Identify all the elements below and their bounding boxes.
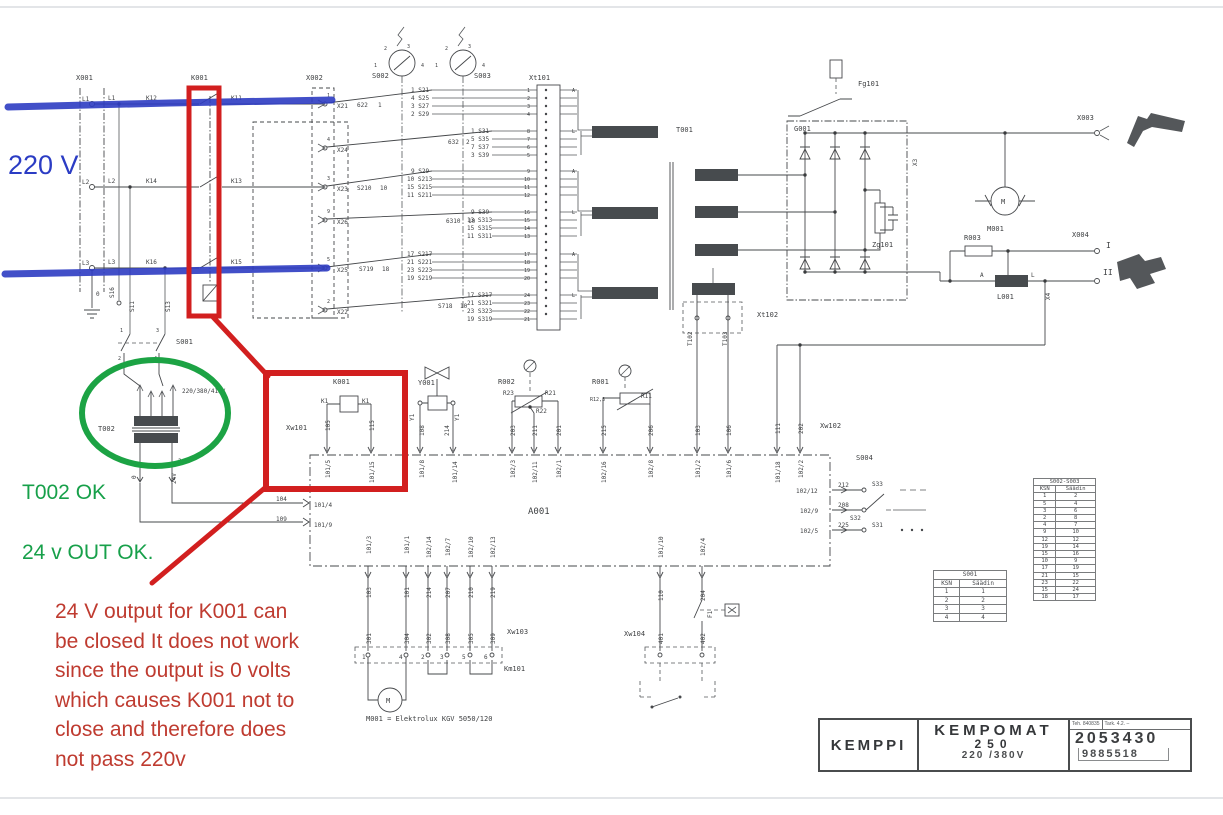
- wire-label: T002: [98, 425, 115, 433]
- wire-label: 208: [838, 502, 849, 509]
- wire-label: 14: [524, 226, 530, 232]
- model-voltage: 220 /380V: [919, 750, 1068, 762]
- wire-label: Xw103: [507, 628, 528, 636]
- wire-label: Xt101: [529, 74, 550, 82]
- wire-label: 102/3: [510, 460, 517, 478]
- supply-voltage-note: 220 V: [8, 150, 79, 181]
- scanned-schematic-page: X001K001X002S002S003Xt101T001G001Fg101X0…: [0, 0, 1223, 815]
- wire-label: 4: [327, 137, 330, 143]
- table-row-cell: 3: [960, 605, 1007, 614]
- a001-control-board: [310, 430, 830, 651]
- table-row: 36: [1034, 507, 1096, 514]
- wire-label: 102/9: [800, 508, 818, 515]
- wire-label: 1 S21: [411, 87, 429, 94]
- wire-label: 632: [448, 139, 459, 146]
- table-header-row-cell: KSN: [934, 579, 960, 588]
- wire-label: L3: [108, 259, 116, 266]
- wire-label: 13 S313: [467, 217, 493, 224]
- wire-label: 2: [118, 356, 121, 362]
- wire-label: Y1: [454, 413, 461, 421]
- wire-label: 101/14: [452, 461, 459, 483]
- wire-label: A: [572, 169, 575, 175]
- wire-label: 19 S219: [407, 275, 433, 282]
- wire-label: 101/10: [658, 536, 665, 558]
- wire-label: 0: [96, 291, 100, 298]
- table-row: 28: [1034, 515, 1096, 522]
- wire-label: S13: [165, 301, 172, 312]
- wire-label: II: [1103, 268, 1113, 277]
- wire-label: X4: [1045, 292, 1052, 300]
- wire-label: 24V: [171, 473, 178, 484]
- wire-label: 101/4: [314, 502, 332, 509]
- wire-label: K14: [146, 178, 157, 185]
- wire-label: 102/10: [468, 536, 475, 558]
- table-row-cell: 19: [1034, 543, 1056, 550]
- table-row-cell: 1: [934, 588, 960, 597]
- red-connector-line-lower: [152, 487, 266, 583]
- table-row: 22: [934, 596, 1007, 605]
- wire-label: M001 = Elektrolux KGV 5050/120: [366, 715, 492, 723]
- wire-label: 10: [524, 177, 530, 183]
- table-row-cell: 7: [1056, 522, 1096, 529]
- table-row-cell: 2: [960, 596, 1007, 605]
- wire-label: 102/14: [426, 536, 433, 558]
- green-ok-note: T002 OK 24 v OUT OK.: [22, 448, 154, 568]
- wire-label: L2: [82, 179, 90, 186]
- xt101-connector: [432, 85, 658, 330]
- wire-label: 1: [378, 102, 382, 109]
- selector-switches-s002-s003: [389, 27, 476, 312]
- wire-label: 20: [524, 276, 530, 282]
- wire-label: F1: [707, 610, 714, 618]
- wire-label: 4: [421, 63, 424, 69]
- wire-label: 4: [527, 112, 530, 118]
- table-title: S001: [934, 571, 1007, 580]
- wire-label: 3: [527, 104, 530, 110]
- wire-label: 2: [445, 46, 448, 52]
- xw104-trigger-section: [640, 566, 739, 709]
- table-title-row: S002-S003: [1034, 479, 1096, 486]
- green-note-line1: T002 OK: [22, 481, 106, 504]
- wire-label: M001: [987, 225, 1004, 233]
- red-fault-note: 24 V output for K001 can be closed It do…: [55, 597, 365, 774]
- wire-label: 21 S221: [407, 259, 433, 266]
- wire-label: 101/6: [726, 460, 733, 478]
- wire-label: 101/2: [695, 460, 702, 478]
- wire-label: 1: [435, 63, 438, 69]
- wire-label: 204: [700, 590, 707, 601]
- table-row-cell: 4: [1056, 500, 1096, 507]
- wire-label: 6: [527, 145, 530, 151]
- wire-label: 101/8: [419, 460, 426, 478]
- table-row: 12: [1034, 493, 1096, 500]
- wire-label: 23: [524, 301, 530, 307]
- wire-label: G001: [794, 125, 811, 133]
- wire-label: 102/8: [648, 460, 655, 478]
- wire-label: 2: [527, 96, 530, 102]
- wire-label: 102/5: [800, 528, 818, 535]
- table-row-cell: 18: [1034, 594, 1056, 601]
- wire-label: 3: [407, 44, 410, 50]
- wire-label: 101/3: [366, 536, 373, 554]
- table-row-cell: 4: [1034, 522, 1056, 529]
- table-title-row: S001: [934, 571, 1007, 580]
- wire-label: Fg101: [858, 80, 879, 88]
- wire-label: 9: [327, 209, 330, 215]
- table-row-cell: 8: [1056, 515, 1096, 522]
- table-row-cell: 24: [1056, 587, 1096, 594]
- wire-label: 24: [524, 293, 530, 299]
- wire-label: 9 S39: [471, 209, 489, 216]
- table-row-cell: 4: [960, 613, 1007, 622]
- wire-label: X22: [337, 309, 348, 316]
- wire-label: R22: [536, 408, 547, 415]
- table-row-cell: 12: [1034, 536, 1056, 543]
- document-number: 2053430: [1070, 730, 1190, 748]
- wire-label: 18: [382, 266, 390, 273]
- t001-transformer: [670, 162, 865, 432]
- wire-label: Xt102: [757, 311, 778, 319]
- table-row-cell: 16: [1056, 551, 1096, 558]
- wire-label: M: [386, 697, 390, 705]
- wire-label: 211: [532, 425, 539, 436]
- wire-label: 11 S311: [467, 233, 493, 240]
- wire-label: 109: [276, 516, 287, 523]
- wire-label: L2: [108, 178, 116, 185]
- wire-label: 8: [527, 129, 530, 135]
- table-row-cell: 1: [1034, 493, 1056, 500]
- wire-label: 2: [466, 139, 470, 146]
- wire-label: 17 S217: [407, 251, 433, 258]
- x002-connector: [253, 88, 492, 318]
- wire-label: 10: [380, 185, 388, 192]
- table-header-row-cell: Säädin: [960, 579, 1007, 588]
- wire-label: 7 S37: [471, 144, 489, 151]
- table-row-cell: 2: [934, 596, 960, 605]
- reference-right: Tark. 4.2. –: [1103, 720, 1132, 729]
- t002-transformer: [132, 385, 309, 526]
- wire-label: 16: [524, 210, 530, 216]
- wire-label: 103: [695, 425, 702, 436]
- wire-label: 212: [838, 482, 849, 489]
- wire-label: S31: [872, 522, 883, 529]
- table-row-cell: 6: [1056, 507, 1096, 514]
- wire-label: 3: [468, 44, 471, 50]
- table-row: 1212: [1034, 536, 1096, 543]
- wire-label: 21: [524, 317, 530, 323]
- table-row: 44: [934, 613, 1007, 622]
- wire-label: 101/9: [314, 522, 332, 529]
- table-title: S002-S003: [1034, 479, 1096, 486]
- wire-label: 622: [357, 102, 368, 109]
- table-row-cell: 21: [1034, 572, 1056, 579]
- wire-label: 301: [366, 633, 373, 644]
- wire-label: 102/4: [700, 538, 707, 556]
- wire-label: 302: [426, 633, 433, 644]
- wire-label: 402: [700, 633, 707, 644]
- wire-label: S16: [109, 287, 116, 298]
- title-block: KEMPPI KEMPOMAT 250 220 /380V Teh. 84083…: [818, 718, 1192, 772]
- wire-label: 17: [524, 252, 530, 258]
- wire-label: 21 S321: [467, 300, 493, 307]
- wire-label: 1 S31: [471, 128, 489, 135]
- earth-clamp-icon: [1117, 254, 1166, 289]
- wire-label: 104: [276, 496, 287, 503]
- wire-label: 1: [374, 63, 377, 69]
- codes-cell: Teh. 840835 Tark. 4.2. – 2053430 9885518: [1070, 720, 1190, 770]
- wire-label: 1: [527, 88, 530, 94]
- wire-label: S004: [856, 454, 873, 462]
- table-row: 1914: [1034, 543, 1096, 550]
- table-row-cell: 19: [1056, 565, 1096, 572]
- table-row-cell: 4: [934, 613, 960, 622]
- wire-label: 309: [490, 633, 497, 644]
- wire-label: 101/5: [325, 460, 332, 478]
- wire-label: R001: [592, 378, 609, 386]
- wire-label: T103: [722, 331, 729, 346]
- wire-label: X001: [76, 74, 93, 82]
- wire-label: 102/11: [532, 461, 539, 483]
- wire-label: K1: [362, 398, 370, 405]
- wire-label: 5 S35: [471, 136, 489, 143]
- wire-label: 115: [369, 420, 376, 431]
- wire-label: 12: [524, 193, 530, 199]
- wire-label: 305: [468, 633, 475, 644]
- wire-label: 7: [527, 137, 530, 143]
- wire-label: 102/2: [798, 460, 805, 478]
- wire-label: 22: [524, 309, 530, 315]
- table-row-cell: 17: [1056, 594, 1096, 601]
- table-row-cell: 12: [1056, 536, 1096, 543]
- wire-label: 225: [838, 522, 849, 529]
- s002-s003-pin-table: S002-S003KSNSäädin1254362847910121219141…: [1033, 478, 1096, 601]
- reference-strip: Teh. 840835 Tark. 4.2. –: [1070, 720, 1190, 730]
- wire-label: 102/16: [601, 461, 608, 483]
- table-row-cell: 15: [1056, 572, 1096, 579]
- wire-label: L: [572, 210, 575, 216]
- wire-label: K13: [231, 178, 242, 185]
- s001-pin-table: S001KSNSäädin11223344: [933, 570, 1007, 622]
- wire-label: 201: [556, 425, 563, 436]
- brand-logo-text: KEMPPI: [820, 720, 919, 770]
- wire-label: 11 S211: [407, 192, 433, 199]
- wire-label: 1: [120, 328, 123, 334]
- table-header-row: KSNSäädin: [1034, 486, 1096, 493]
- wire-label: 15: [524, 218, 530, 224]
- wire-label: 219: [490, 587, 497, 598]
- wire-label: X004: [1072, 231, 1089, 239]
- wire-label: 202: [798, 423, 805, 434]
- wire-label: 111: [775, 423, 782, 434]
- wire-label: T001: [676, 126, 693, 134]
- wire-label: 206: [648, 425, 655, 436]
- wire-label: K001: [333, 378, 350, 386]
- wire-label: 102/12: [796, 488, 818, 495]
- wire-label: I: [1106, 241, 1111, 250]
- wire-label: L: [1031, 272, 1035, 279]
- wire-label: 4 S25: [411, 95, 429, 102]
- wire-label: Km101: [504, 665, 525, 673]
- wire-label: 203: [510, 425, 517, 436]
- table-row: 2322: [1034, 579, 1096, 586]
- table-row: 1719: [1034, 565, 1096, 572]
- wire-label: 105: [325, 420, 332, 431]
- table-header-row-cell: KSN: [1034, 486, 1056, 493]
- wire-label: T102: [687, 331, 694, 346]
- wire-label: L001: [997, 293, 1014, 301]
- wire-label: 103: [366, 587, 373, 598]
- table-row: 47: [1034, 522, 1096, 529]
- wire-label: 23 S223: [407, 267, 433, 274]
- xw103-motor-section: [355, 647, 502, 712]
- wire-label: 2 S29: [411, 111, 429, 118]
- wire-label: 308: [445, 633, 452, 644]
- blue-supply-line-top: [8, 100, 332, 107]
- table-row-cell: 2: [1056, 493, 1096, 500]
- wire-label: 2: [384, 46, 387, 52]
- wire-label: R12,3: [590, 397, 605, 403]
- wire-label: 101/18: [775, 461, 782, 483]
- table-row-cell: 9: [1056, 558, 1096, 565]
- wire-label: 401: [658, 633, 665, 644]
- wire-label: 110: [658, 590, 665, 601]
- wire-label: 214: [426, 587, 433, 598]
- table-row-cell: 1: [960, 588, 1007, 597]
- wire-label: 11: [524, 185, 530, 191]
- table-row: 2115: [1034, 572, 1096, 579]
- table-row-cell: 15: [1034, 587, 1056, 594]
- wire-label: X002: [306, 74, 323, 82]
- wire-label: S719: [359, 266, 374, 273]
- wire-label: 9 S29: [411, 168, 429, 175]
- wire-label: 3: [440, 654, 444, 661]
- part-number: 9885518: [1078, 748, 1169, 761]
- wire-label: K001: [191, 74, 208, 82]
- wire-label: 207: [445, 587, 452, 598]
- wire-label: 304: [404, 633, 411, 644]
- g001-rectifier: [787, 60, 907, 300]
- wire-label: 6310: [446, 218, 461, 225]
- table-row: 1516: [1034, 551, 1096, 558]
- wire-label: R003: [964, 234, 981, 242]
- wire-label: Zg101: [872, 241, 893, 249]
- wire-label: 19 S319: [467, 316, 493, 323]
- table-row-cell: 17: [1034, 565, 1056, 572]
- red-highlight-box-k001-contacts: [189, 88, 219, 316]
- wire-label: 5: [527, 153, 530, 159]
- wire-label: S11: [129, 301, 136, 312]
- wire-label: 108: [419, 425, 426, 436]
- wire-label: L: [572, 293, 575, 299]
- wire-label: L: [572, 129, 575, 135]
- wire-label: S718: [438, 303, 453, 310]
- wire-label: 215: [601, 425, 608, 436]
- wire-label: L3: [82, 260, 90, 267]
- table-row-cell: 14: [1056, 543, 1096, 550]
- wire-label: R23: [503, 390, 514, 397]
- wire-label: X25: [337, 267, 348, 274]
- table-row: 1524: [1034, 587, 1096, 594]
- wire-label: 18: [524, 260, 530, 266]
- wire-label: S32: [850, 515, 861, 522]
- wire-label: 6: [484, 654, 488, 661]
- table-row-cell: 9: [1034, 529, 1056, 536]
- wire-label: 15 S215: [407, 184, 433, 191]
- table-row-cell: 3: [1034, 507, 1056, 514]
- wire-label: 3: [327, 176, 330, 182]
- wire-label: X23: [337, 186, 348, 193]
- wire-label: Y1: [409, 413, 416, 421]
- wire-label: 17 S317: [467, 292, 493, 299]
- wire-label: 102/13: [490, 536, 497, 558]
- wire-label: M: [1001, 198, 1005, 206]
- wire-label: 4: [482, 63, 485, 69]
- table-row: 910: [1034, 529, 1096, 536]
- green-note-line2: 24 v OUT OK.: [22, 541, 154, 564]
- wire-label: 210: [468, 587, 475, 598]
- wire-label: X3: [912, 158, 919, 166]
- wire-label: 102/1: [556, 460, 563, 478]
- wire-label: Xw104: [624, 630, 645, 638]
- wire-label: 23 S323: [467, 308, 493, 315]
- wire-label: K16: [146, 259, 157, 266]
- scan-edge-bottom: [0, 797, 1223, 799]
- wire-label: 214: [444, 425, 451, 436]
- model-size: 250: [919, 739, 1068, 750]
- wire-label: A001: [528, 507, 550, 517]
- wire-label: R11: [641, 393, 652, 400]
- wire-label: S001: [176, 338, 193, 346]
- reference-left: Teh. 840835: [1070, 720, 1103, 729]
- power-input-section: [80, 88, 323, 334]
- table-row: 11: [934, 588, 1007, 597]
- wire-label: A: [572, 252, 575, 258]
- wire-label: K1: [321, 398, 329, 405]
- table-row-cell: 23: [1034, 579, 1056, 586]
- wire-label: Y001: [418, 379, 435, 387]
- welding-torch-icon: [1127, 113, 1185, 147]
- wire-label: R21: [545, 390, 556, 397]
- wire-label: 13: [524, 234, 530, 240]
- wire-label: S003: [474, 72, 491, 80]
- wire-label: R002: [498, 378, 515, 386]
- table-row-cell: 3: [934, 605, 960, 614]
- table-row: 54: [1034, 500, 1096, 507]
- wire-label: 15 S315: [467, 225, 493, 232]
- wire-label: 3 S27: [411, 103, 429, 110]
- wire-label: S002: [372, 72, 389, 80]
- table-row-cell: 15: [1034, 551, 1056, 558]
- wire-label: K15: [231, 259, 242, 266]
- table-row-cell: 10: [1034, 558, 1056, 565]
- wire-label: 101: [404, 587, 411, 598]
- wire-label: X003: [1077, 114, 1094, 122]
- wire-label: S210: [357, 185, 372, 192]
- wire-label: 106: [726, 425, 733, 436]
- wire-label: Xw102: [820, 422, 841, 430]
- wire-label: 19: [524, 268, 530, 274]
- wire-label: X21: [337, 103, 348, 110]
- wire-label: 10 S213: [407, 176, 433, 183]
- wire-label: 3: [156, 328, 159, 334]
- wire-label: 9: [527, 169, 530, 175]
- wire-label: 2: [421, 654, 425, 661]
- wire-label: 3 S39: [471, 152, 489, 159]
- wire-label: S33: [872, 481, 883, 488]
- wire-label: A: [572, 88, 575, 94]
- model-cell: KEMPOMAT 250 220 /380V: [919, 720, 1070, 770]
- wire-label: 5: [327, 257, 330, 263]
